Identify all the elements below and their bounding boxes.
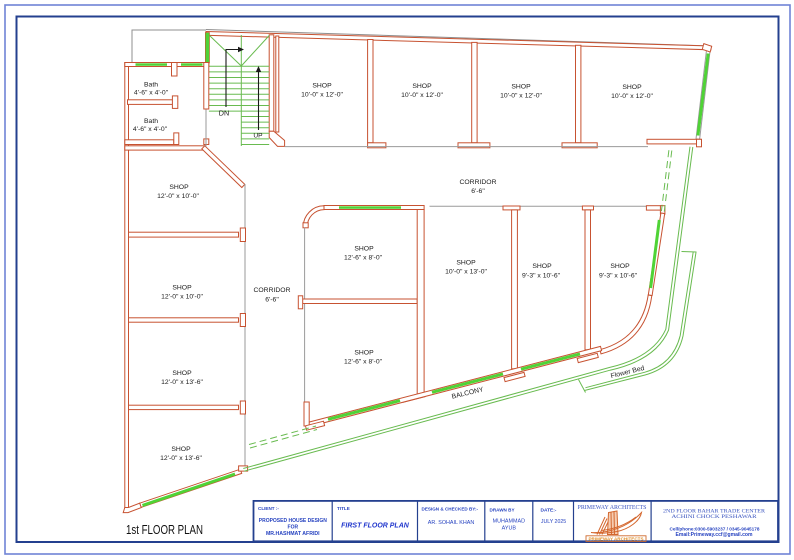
svg-text:10'-0" x 12'-0": 10'-0" x 12'-0" (401, 92, 443, 99)
svg-text:SHOP: SHOP (511, 84, 531, 91)
svg-text:MUHAMMAD: MUHAMMAD (493, 519, 525, 525)
svg-text:PRIMEWAY ARCHITECTS: PRIMEWAY ARCHITECTS (578, 504, 648, 511)
svg-text:DRAWN BY: DRAWN BY (490, 508, 515, 513)
svg-text:SHOP: SHOP (354, 246, 374, 253)
svg-text:SHOP: SHOP (412, 83, 432, 90)
svg-text:CLIENT :-: CLIENT :- (258, 506, 279, 511)
svg-text:12'-6" x 8'-0": 12'-6" x 8'-0" (344, 359, 383, 366)
svg-text:DESIGN & CHECKED BY:-: DESIGN & CHECKED BY:- (422, 507, 479, 512)
svg-text:10'-0" x 12'-0": 10'-0" x 12'-0" (301, 92, 343, 99)
svg-text:UP: UP (253, 133, 263, 140)
svg-text:6'-6": 6'-6" (265, 297, 279, 304)
svg-text:12'-6" x 8'-0": 12'-6" x 8'-0" (344, 255, 383, 262)
svg-text:DATE:-: DATE:- (541, 508, 557, 514)
svg-text:AYUB: AYUB (502, 526, 517, 532)
svg-text:SHOP: SHOP (312, 83, 332, 90)
svg-text:Cell/phone:0300-5903237 / 0345: Cell/phone:0300-5903237 / 0345-9045178 (670, 527, 760, 532)
svg-text:SHOP: SHOP (172, 370, 192, 377)
svg-text:Bath: Bath (144, 118, 158, 125)
svg-text:10'-0" x 12'-0": 10'-0" x 12'-0" (500, 93, 542, 100)
svg-text:12'-0" x 10'-0": 12'-0" x 10'-0" (157, 193, 199, 200)
svg-text:SHOP: SHOP (456, 260, 476, 267)
svg-text:Bath: Bath (144, 82, 158, 89)
svg-text:4'-6" x 4'-0": 4'-6" x 4'-0" (134, 90, 169, 97)
svg-text:MR.HASHMAT AFRIDI: MR.HASHMAT AFRIDI (266, 531, 320, 537)
svg-text:10'-0" x 13'-0": 10'-0" x 13'-0" (445, 269, 487, 276)
svg-text:9'-3" x 10'-6": 9'-3" x 10'-6" (522, 273, 561, 280)
svg-text:TITLE: TITLE (337, 506, 350, 511)
svg-text:ACHINI CHOCK PESHAWAR: ACHINI CHOCK PESHAWAR (672, 514, 757, 520)
svg-text:1st FLOOR PLAN: 1st FLOOR PLAN (126, 523, 203, 537)
svg-text:6'-6": 6'-6" (471, 188, 485, 195)
svg-text:10'-0" x 12'-0": 10'-0" x 12'-0" (611, 93, 653, 100)
svg-text:4'-6" x 4'-0": 4'-6" x 4'-0" (133, 126, 168, 133)
svg-text:CORRIDOR: CORRIDOR (459, 179, 496, 186)
svg-text:12'-0" x 13'-6": 12'-0" x 13'-6" (160, 455, 202, 462)
svg-text:SHOP: SHOP (622, 84, 642, 91)
svg-text:12'-0" x 10'-0": 12'-0" x 10'-0" (161, 294, 203, 301)
svg-text:PROPOSED HOUSE DESIGN: PROPOSED HOUSE DESIGN (259, 518, 327, 524)
svg-text:9'-3" x 10'-6": 9'-3" x 10'-6" (599, 273, 638, 280)
svg-text:SHOP: SHOP (169, 184, 189, 191)
svg-text:AR. SOHAIL KHAN: AR. SOHAIL KHAN (428, 520, 475, 526)
svg-text:12'-0" x 13'-6": 12'-0" x 13'-6" (161, 379, 203, 386)
svg-text:DN: DN (219, 109, 229, 118)
svg-text:FOR: FOR (288, 525, 299, 531)
svg-text:PRIMEWAY ARCHITECTS: PRIMEWAY ARCHITECTS (589, 537, 644, 542)
svg-text:CORRIDOR: CORRIDOR (253, 287, 290, 294)
svg-text:SHOP: SHOP (171, 446, 191, 453)
svg-text:SHOP: SHOP (354, 350, 374, 357)
svg-text:Email:Primeway.ccf@gmail.com: Email:Primeway.ccf@gmail.com (676, 532, 754, 538)
svg-text:SHOP: SHOP (172, 285, 192, 292)
svg-text:SHOP: SHOP (532, 263, 552, 270)
svg-text:SHOP: SHOP (610, 263, 630, 270)
svg-text:JULY 2025: JULY 2025 (541, 519, 566, 525)
svg-text:FIRST FLOOR PLAN: FIRST FLOOR PLAN (341, 523, 410, 530)
